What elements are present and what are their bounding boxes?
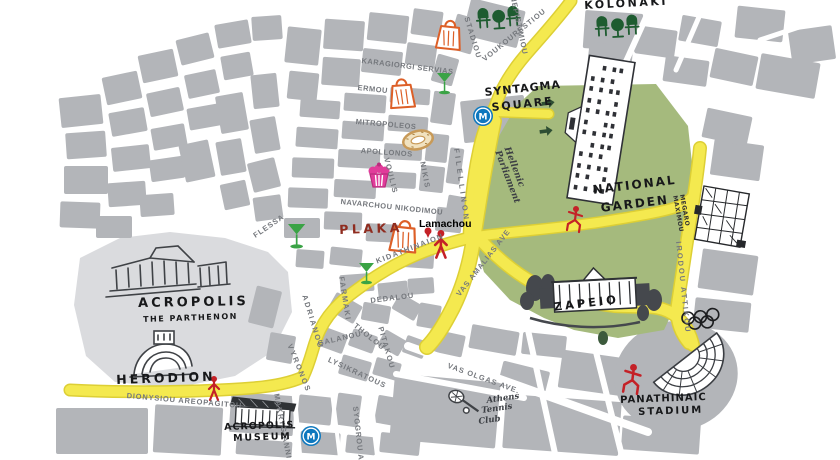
poi-label-lamachou: Lamachou — [419, 219, 472, 231]
metro-letter: M — [307, 433, 316, 443]
athens-illustrated-map[interactable]: M M KARAGIORGI SERVIAS ERMOU MITROPOLEOS… — [0, 0, 840, 460]
shopping-bag-icon — [389, 79, 415, 109]
metro-marker-syntagma[interactable]: M — [473, 106, 493, 126]
poi-label-stadium-2: STADIUM — [638, 405, 703, 418]
poi-label-acropolis: ACROPOLIS — [138, 295, 249, 311]
poi-label-plaka: PLAKA — [339, 221, 403, 237]
metro-letter: M — [479, 113, 488, 123]
metro-marker-acropolis-museum[interactable]: M — [301, 426, 321, 446]
poi-label-museum-2: MUSEUM — [233, 432, 292, 444]
